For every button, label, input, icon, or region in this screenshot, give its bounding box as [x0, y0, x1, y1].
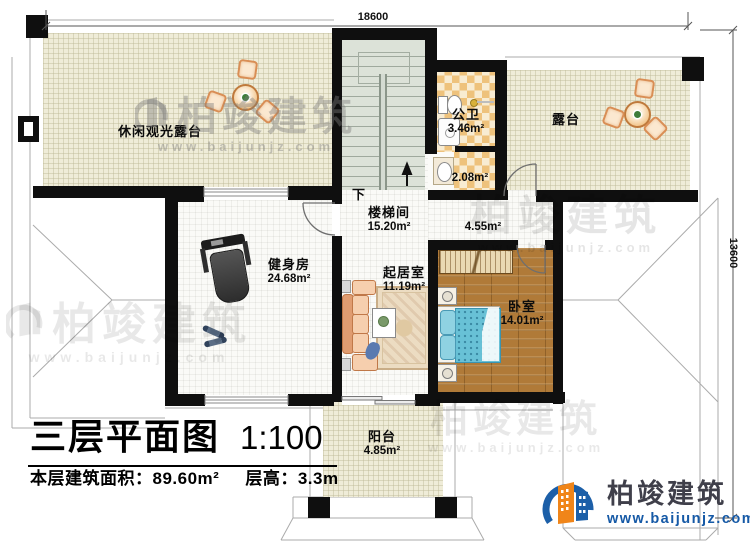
room-area: 15.20m²	[362, 221, 416, 234]
terrace2-chair	[634, 78, 655, 99]
room-leisure-terrace-floor	[43, 33, 332, 188]
room-area: 4.55m²	[462, 221, 504, 234]
brand-logo: 柏竣建筑 www.baijunjz.com	[538, 476, 750, 532]
stair-railing	[379, 74, 387, 190]
column-balcony-left	[308, 497, 330, 518]
table-plant-icon	[379, 317, 388, 326]
stair-west-wall	[332, 28, 342, 204]
room-name: 公卫	[440, 108, 492, 123]
terrace-south-wall	[288, 186, 334, 200]
gym-east-wall	[332, 236, 342, 402]
plan-title-block: 三层平面图 1:100	[28, 408, 337, 467]
dimension-right: 13600	[727, 231, 739, 275]
room-label-leisure-terrace: 休闲观光露台	[100, 125, 220, 140]
room-name: 楼梯间	[362, 206, 416, 221]
nightstand	[437, 364, 457, 382]
dimension-top: 18600	[350, 11, 396, 23]
brand-name: 柏竣建筑	[607, 481, 750, 508]
room-name: 卧室	[492, 300, 552, 315]
plan-area-line: 本层建筑面积：89.60m²层高：3.3m	[30, 464, 339, 489]
room-label-balcony: 阳台 4.85m²	[352, 430, 412, 457]
stair-north-wall	[334, 28, 432, 40]
bath-divider-wall	[455, 146, 495, 152]
room-label-corridor: 4.55m²	[462, 221, 504, 234]
brand-url: www.baijunjz.com	[607, 511, 750, 527]
table-centerpiece-icon	[634, 111, 641, 118]
room-label-gym: 健身房 24.68m²	[258, 258, 320, 285]
area-label: 本层建筑面积：	[30, 469, 153, 488]
bedroom-south-wall	[428, 392, 565, 403]
stair-east-wall	[425, 28, 437, 154]
room-area: 4.85m²	[352, 445, 412, 458]
room-label-bath-annex: 2.08m²	[444, 172, 496, 185]
dumbbells	[202, 327, 228, 349]
terrace1-chair	[237, 59, 258, 80]
down-text: 下	[350, 188, 368, 203]
terrace1-round-table	[232, 84, 259, 111]
gym-north-wall	[177, 192, 204, 202]
room-label-bedroom: 卧室 14.01m²	[492, 300, 552, 327]
watermark-logo-icon	[6, 297, 46, 343]
room-area: 3.46m²	[440, 123, 492, 136]
room-area: 14.01m²	[492, 315, 552, 328]
lamp-icon	[442, 291, 453, 302]
watermark-url: www.baijunjz.com	[428, 440, 604, 455]
pillow	[440, 335, 456, 360]
plan-title: 三层平面图	[30, 408, 220, 460]
room-name: 休闲观光露台	[100, 125, 220, 140]
plan-scale: 1:100	[240, 419, 323, 457]
lamp-icon	[442, 368, 453, 379]
sofa-cushion	[352, 295, 369, 315]
table-centerpiece-icon	[242, 94, 249, 101]
bath-south-wall	[428, 190, 508, 200]
sofa-cushion	[352, 314, 369, 334]
room-label-living: 起居室 11.19m²	[374, 266, 434, 293]
dumbbell	[204, 336, 228, 347]
window-left-marker	[18, 116, 39, 142]
armchair	[352, 280, 376, 295]
column-topright	[682, 57, 704, 81]
gym-south-wall	[165, 394, 205, 406]
floor-height-label: 层高：	[245, 469, 298, 488]
treadmill-rail	[200, 248, 209, 273]
floor-height-value: 3.3m	[298, 469, 339, 488]
room-area: 2.08m²	[444, 172, 496, 185]
column-balcony-right	[435, 497, 457, 518]
window-pane	[24, 122, 33, 136]
room-name: 露台	[548, 113, 584, 128]
floor-plan-canvas: 休闲观光露台 公卫 3.46m² 2.08m² 露台 楼梯间 15.20m² 4…	[0, 0, 750, 546]
brand-logo-icon	[538, 476, 600, 532]
room-label-terrace: 露台	[548, 113, 584, 128]
room-label-stairwell: 楼梯间 15.20m²	[362, 206, 416, 233]
bath-east-wall	[495, 60, 507, 196]
stairs-down-label: 下	[350, 188, 368, 203]
treadmill	[197, 231, 268, 308]
room-name: 阳台	[352, 430, 412, 445]
pillow	[440, 310, 456, 335]
room-name: 健身房	[258, 258, 320, 273]
room-area: 24.68m²	[258, 273, 320, 286]
bedroom-east-wall	[553, 190, 563, 404]
room-label-bath: 公卫 3.46m²	[440, 108, 492, 135]
fixture-arm	[477, 101, 494, 103]
room-area: 11.19m²	[374, 281, 434, 294]
bed	[437, 306, 500, 363]
bedroom-north-wall	[428, 240, 518, 250]
room-name: 起居室	[374, 266, 434, 281]
gym-west-wall	[165, 196, 178, 402]
area-value: 89.60m²	[153, 469, 220, 488]
nightstand	[437, 287, 457, 305]
column-topleft	[26, 15, 48, 38]
wardrobe	[439, 250, 513, 274]
gym-south-wall	[288, 394, 334, 406]
coffee-table	[372, 308, 396, 338]
